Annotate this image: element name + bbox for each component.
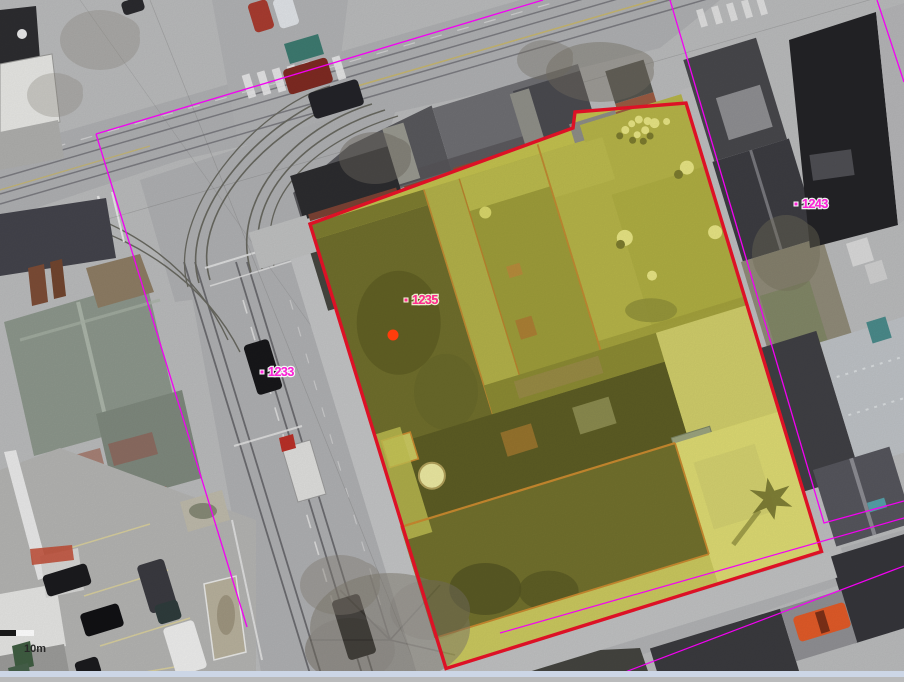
svg-text:1233: 1233 <box>268 365 294 379</box>
svg-text:1235: 1235 <box>412 293 438 307</box>
svg-text:1243: 1243 <box>802 197 828 211</box>
